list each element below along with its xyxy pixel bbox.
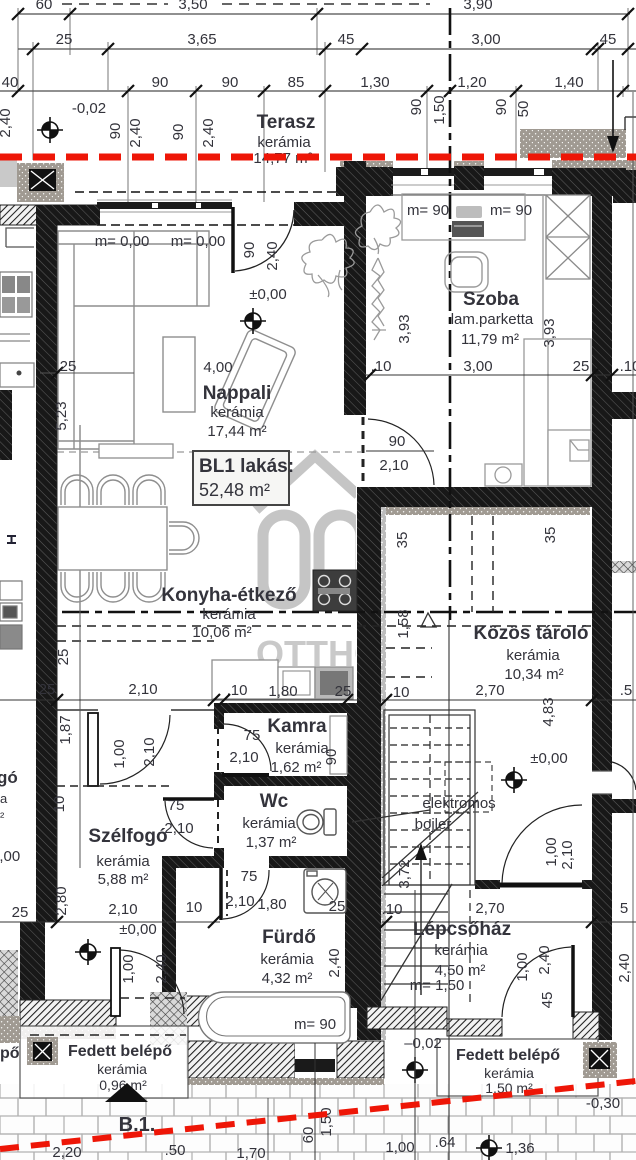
svg-text:-0,30: -0,30 <box>586 1095 620 1112</box>
svg-text:.64: .64 <box>435 1134 456 1151</box>
svg-text:25: 25 <box>56 31 73 48</box>
svg-text:3,65: 3,65 <box>187 31 216 48</box>
svg-text:m= 90: m= 90 <box>490 202 532 219</box>
svg-text:10,06 m²: 10,06 m² <box>192 624 251 641</box>
svg-text:40: 40 <box>2 74 19 91</box>
svg-text:90: 90 <box>107 123 124 140</box>
svg-text:3,00: 3,00 <box>463 358 492 375</box>
svg-text:.10: .10 <box>620 358 636 375</box>
svg-text:kerámia: kerámia <box>484 1065 534 1081</box>
svg-text:m= 90: m= 90 <box>407 202 449 219</box>
svg-text:1,62 m²: 1,62 m² <box>271 759 322 776</box>
svg-text:Fürdő: Fürdő <box>262 927 316 948</box>
svg-text:BL1 lakás:: BL1 lakás: <box>199 456 294 477</box>
svg-text:2,20: 2,20 <box>52 1144 81 1160</box>
svg-text:kerámia: kerámia <box>97 1061 147 1077</box>
svg-text:2,40: 2,40 <box>536 945 553 974</box>
svg-text:2,10: 2,10 <box>379 457 408 474</box>
svg-text:a: a <box>0 791 8 806</box>
svg-text:5,88 m²: 5,88 m² <box>98 871 149 888</box>
svg-text:±0,00: ±0,00 <box>119 921 156 938</box>
svg-text:90: 90 <box>408 99 425 116</box>
svg-text:60: 60 <box>36 0 53 13</box>
svg-text:2,10: 2,10 <box>229 749 258 766</box>
svg-text:Fedett belépő: Fedett belépő <box>456 1047 560 1064</box>
svg-text:25: 25 <box>12 904 29 921</box>
svg-text:1,00: 1,00 <box>543 837 560 866</box>
svg-text:90: 90 <box>222 74 239 91</box>
svg-text:.10: .10 <box>382 901 403 918</box>
svg-text:52,48 m²: 52,48 m² <box>199 480 270 500</box>
svg-text:45: 45 <box>338 31 355 48</box>
svg-text:1,00: 1,00 <box>111 739 128 768</box>
svg-text:Kamra: Kamra <box>267 716 327 737</box>
svg-text:.10: .10 <box>389 684 410 701</box>
svg-text:5,23: 5,23 <box>53 401 70 430</box>
svg-text:±0,00: ±0,00 <box>249 286 286 303</box>
svg-text:90: 90 <box>493 99 510 116</box>
svg-text:10: 10 <box>186 899 203 916</box>
svg-text:2,40: 2,40 <box>616 953 633 982</box>
svg-text:2,80: 2,80 <box>53 886 70 915</box>
svg-text:90: 90 <box>241 242 258 259</box>
svg-text:-0,02: -0,02 <box>72 100 106 117</box>
svg-text:2,10: 2,10 <box>108 901 137 918</box>
svg-text:²: ² <box>0 809 5 824</box>
svg-text:m= 90: m= 90 <box>294 1016 336 1033</box>
svg-text:2,70: 2,70 <box>475 900 504 917</box>
svg-text:kerámia: kerámia <box>210 404 264 421</box>
svg-text:2,10: 2,10 <box>128 681 157 698</box>
svg-text:gó: gó <box>0 768 18 787</box>
svg-text:m= 0,00: m= 0,00 <box>171 233 226 250</box>
svg-text:5: 5 <box>620 900 628 917</box>
svg-text:.5: .5 <box>620 682 633 699</box>
svg-text:1,50: 1,50 <box>431 95 448 124</box>
svg-text:2,10: 2,10 <box>141 737 158 766</box>
svg-text:45: 45 <box>539 992 556 1009</box>
svg-text:Fedett belépő: Fedett belépő <box>68 1043 172 1060</box>
svg-text:75: 75 <box>244 727 261 744</box>
svg-text:3,93: 3,93 <box>396 314 413 343</box>
svg-text:1,40: 1,40 <box>554 74 583 91</box>
svg-text:1,00: 1,00 <box>514 952 531 981</box>
svg-text:1,80: 1,80 <box>268 683 297 700</box>
svg-text:2,40: 2,40 <box>200 118 217 147</box>
svg-text:90: 90 <box>152 74 169 91</box>
svg-text:4,00: 4,00 <box>203 359 232 376</box>
svg-text:2,40: 2,40 <box>127 118 144 147</box>
svg-text:Szoba: Szoba <box>463 289 519 310</box>
svg-text:bojler: bojler <box>415 816 452 833</box>
svg-text:2,40: 2,40 <box>326 948 343 977</box>
svg-text:1,36: 1,36 <box>505 1140 534 1157</box>
svg-text:85: 85 <box>288 74 305 91</box>
svg-text:m= 1,50: m= 1,50 <box>410 977 465 994</box>
svg-text:–0,02: –0,02 <box>404 1035 442 1052</box>
svg-text:3,90: 3,90 <box>463 0 492 13</box>
svg-text:2,10: 2,10 <box>225 893 254 910</box>
svg-text:kerámia: kerámia <box>434 942 488 959</box>
svg-text:25: 25 <box>573 358 590 375</box>
svg-text:1,70: 1,70 <box>236 1145 265 1160</box>
svg-text:90: 90 <box>389 433 406 450</box>
svg-text:Szélfogó: Szélfogó <box>88 826 167 847</box>
svg-text:17,44 m²: 17,44 m² <box>207 423 266 440</box>
svg-text:25: 25 <box>39 681 56 698</box>
svg-text:Nappali: Nappali <box>203 383 272 404</box>
svg-text:25: 25 <box>60 358 77 375</box>
svg-text:50: 50 <box>515 101 532 118</box>
svg-text:1,00: 1,00 <box>385 1139 414 1156</box>
svg-text:kerámia: kerámia <box>257 134 311 151</box>
svg-text:kerámia: kerámia <box>202 606 256 623</box>
svg-text:3,00: 3,00 <box>471 31 500 48</box>
svg-text:1,20: 1,20 <box>457 74 486 91</box>
svg-text:3,93: 3,93 <box>541 318 558 347</box>
svg-text:2,40: 2,40 <box>153 954 170 983</box>
svg-text:Konyha-étkező: Konyha-étkező <box>161 585 296 606</box>
svg-text:35: 35 <box>542 527 559 544</box>
svg-text:m= 0,00: m= 0,00 <box>95 233 150 250</box>
svg-text:2,10: 2,10 <box>164 820 193 837</box>
svg-text:pő: pő <box>0 1045 20 1062</box>
svg-text:11,79 m²: 11,79 m² <box>461 331 519 348</box>
svg-text:kerámia: kerámia <box>242 815 296 832</box>
svg-text:1,80: 1,80 <box>257 896 286 913</box>
svg-text:35: 35 <box>394 532 411 549</box>
svg-text:2,10: 2,10 <box>559 840 576 869</box>
svg-text:kerámia: kerámia <box>275 740 329 757</box>
svg-text:2,40: 2,40 <box>264 241 281 270</box>
svg-text:0,00: 0,00 <box>0 848 20 865</box>
svg-text:.50: .50 <box>165 1142 186 1159</box>
svg-text:lam.parketta: lam.parketta <box>451 311 534 328</box>
svg-text:±0,00: ±0,00 <box>530 750 567 767</box>
svg-text:1,30: 1,30 <box>360 74 389 91</box>
svg-text:kerámia: kerámia <box>506 647 560 664</box>
svg-text:4,83: 4,83 <box>540 697 557 726</box>
svg-text:1,87: 1,87 <box>57 715 74 744</box>
svg-text:Terasz: Terasz <box>257 112 316 133</box>
svg-text:90: 90 <box>323 749 340 766</box>
svg-text:kerámia: kerámia <box>96 853 150 870</box>
svg-text:4,32 m²: 4,32 m² <box>262 970 313 987</box>
svg-text:Wc: Wc <box>260 791 289 812</box>
svg-text:90: 90 <box>170 124 187 141</box>
svg-text:kerámia: kerámia <box>260 951 314 968</box>
svg-text:elektromos: elektromos <box>422 795 495 812</box>
svg-text:10: 10 <box>51 796 68 813</box>
svg-text:60: 60 <box>300 1127 317 1144</box>
svg-text:10,34 m²: 10,34 m² <box>504 666 563 683</box>
svg-text:.10: .10 <box>227 682 248 699</box>
svg-text:75: 75 <box>241 868 258 885</box>
svg-text:75: 75 <box>168 797 185 814</box>
svg-text:3,50: 3,50 <box>178 0 207 13</box>
svg-text:25: 25 <box>55 649 72 666</box>
svg-text:2,70: 2,70 <box>475 682 504 699</box>
svg-text:2,40: 2,40 <box>0 108 14 137</box>
svg-text:45: 45 <box>600 31 617 48</box>
svg-text:25: 25 <box>329 898 346 915</box>
svg-text:3,72: 3,72 <box>396 859 413 888</box>
svg-text:1,00: 1,00 <box>120 954 137 983</box>
svg-text:1,58: 1,58 <box>395 609 412 638</box>
svg-text:1,37 m²: 1,37 m² <box>246 834 297 851</box>
svg-text:Közös tároló: Közös tároló <box>473 623 588 644</box>
